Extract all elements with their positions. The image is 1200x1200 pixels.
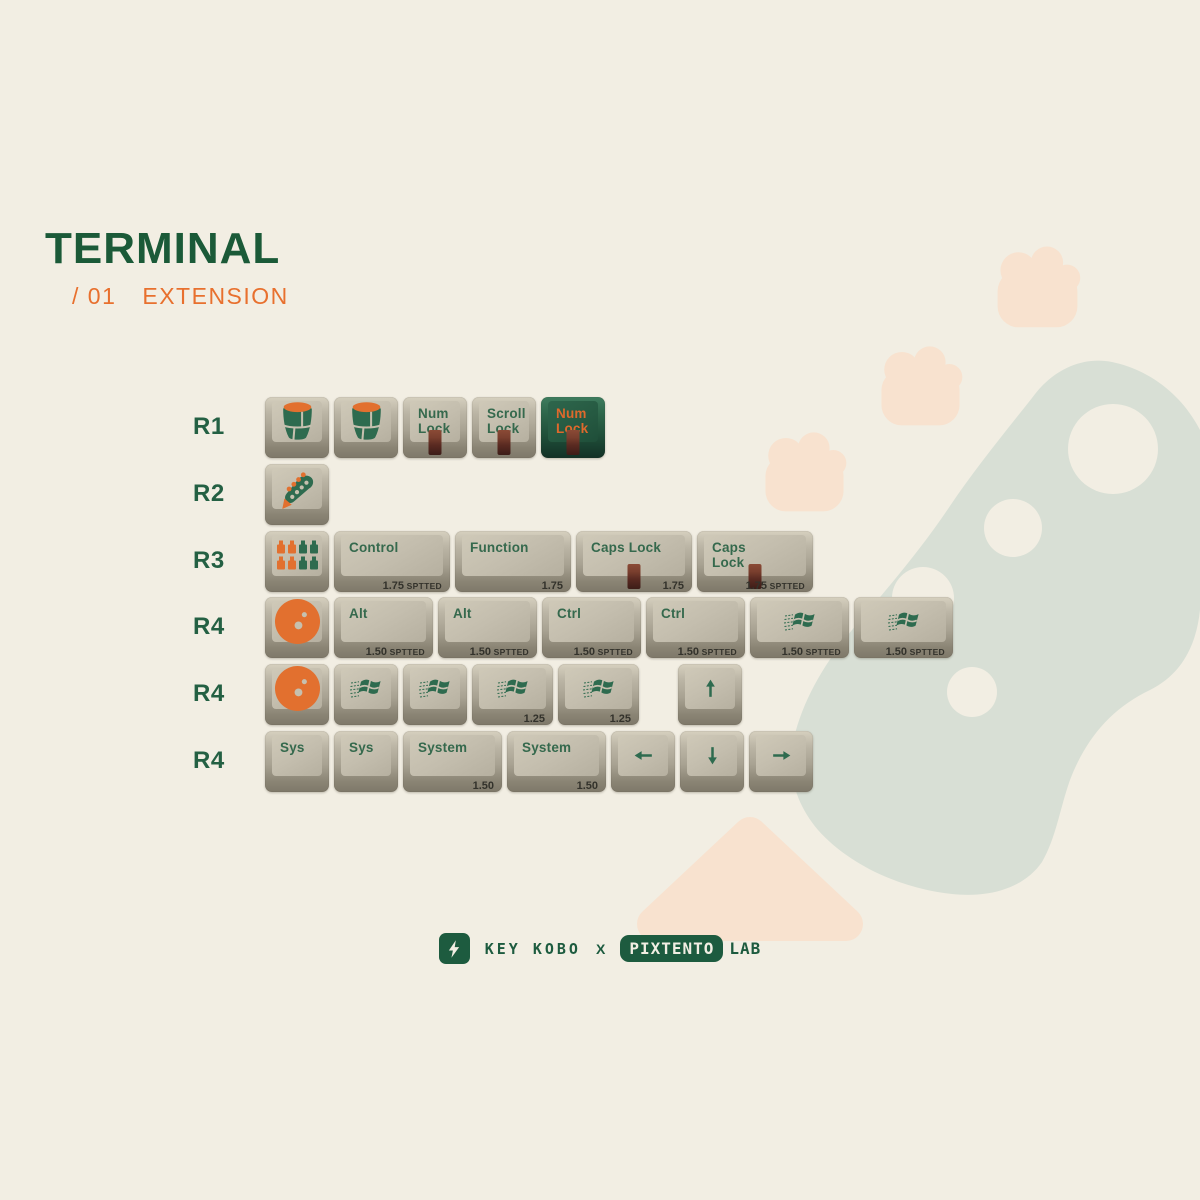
windows-logo-icon bbox=[496, 674, 530, 704]
windows-logo-icon bbox=[582, 674, 616, 704]
guitar-headstock-icon bbox=[276, 468, 318, 510]
keycap-top: Ctrl bbox=[653, 601, 738, 642]
brand-footer: KEY KOBO X PIXTENTO LAB bbox=[0, 933, 1200, 964]
bowling-ball-icon bbox=[274, 665, 321, 712]
keycap-size-label: 1.25 bbox=[524, 713, 545, 725]
keycap-ctrl: Ctrl1.50 SPTTED bbox=[646, 597, 745, 658]
keycap-legend: Alt bbox=[453, 606, 472, 621]
keycap-drum bbox=[334, 397, 398, 458]
keycap-size-label: 1.50 SPTTED bbox=[782, 646, 841, 658]
arrow-up-icon bbox=[698, 676, 723, 701]
keycap-legend: Control bbox=[349, 540, 398, 555]
keycap-top bbox=[618, 735, 668, 776]
keycap-size-label: 1.75 SPTTED bbox=[746, 580, 805, 592]
keycap-alt: Alt1.50 SPTTED bbox=[334, 597, 433, 658]
keycap-top: System bbox=[514, 735, 599, 776]
keycap-function: Function1.75 bbox=[455, 531, 571, 592]
keycap-bowling-ball bbox=[265, 597, 329, 658]
row-label: R4 bbox=[193, 613, 225, 641]
keycap-top bbox=[756, 735, 806, 776]
keycap-rows: R1NumLockScrollLockNumLockR2R3Control1.7… bbox=[0, 0, 1200, 1200]
keycap-top bbox=[410, 668, 460, 709]
keycap-arrow-right bbox=[749, 731, 813, 792]
keycap-legend: Function bbox=[470, 540, 529, 555]
poster-canvas: TERMINAL / 01 EXTENSION R1NumLockScrollL… bbox=[0, 0, 1200, 1200]
row-label: R4 bbox=[193, 680, 225, 708]
brand-key-kobo: KEY KOBO bbox=[485, 940, 581, 958]
keycap-system: System1.50 bbox=[507, 731, 606, 792]
keycap-alt: Alt1.50 SPTTED bbox=[438, 597, 537, 658]
keycap-top bbox=[272, 601, 322, 642]
keycap-top bbox=[479, 668, 546, 709]
keycap-top: Sys bbox=[341, 735, 391, 776]
keycap-top bbox=[341, 668, 391, 709]
keycap-arrow-up bbox=[678, 664, 742, 725]
led-window bbox=[498, 430, 511, 455]
bowling-ball-icon bbox=[274, 598, 321, 645]
keycap-top bbox=[272, 468, 322, 509]
mixer-faders-icon bbox=[275, 540, 319, 571]
keycap-mixer-faders bbox=[265, 531, 329, 592]
keycap-size-label: 1.50 SPTTED bbox=[886, 646, 945, 658]
keycap-size-label: 1.50 SPTTED bbox=[366, 646, 425, 658]
keycap-windows-logo: 1.25 bbox=[472, 664, 553, 725]
keycap-size-label: 1.50 bbox=[473, 780, 494, 792]
windows-logo-icon bbox=[783, 607, 817, 637]
keycap-size-label: 1.75 SPTTED bbox=[383, 580, 442, 592]
arrow-down-icon bbox=[700, 743, 725, 768]
keycap-bowling-ball bbox=[265, 664, 329, 725]
keycap-guitar-headstock bbox=[265, 464, 329, 525]
keycap-top bbox=[685, 668, 735, 709]
keycap-caps-lock: CapsLock1.75 SPTTED bbox=[697, 531, 813, 592]
keycap-windows-logo: 1.50 SPTTED bbox=[750, 597, 849, 658]
keycap-sys: Sys bbox=[334, 731, 398, 792]
row-label: R4 bbox=[193, 747, 225, 775]
row-label: R3 bbox=[193, 547, 225, 575]
keycap-arrow-down bbox=[680, 731, 744, 792]
keycap-windows-logo bbox=[334, 664, 398, 725]
keycap-top: System bbox=[410, 735, 495, 776]
keycap-system: System1.50 bbox=[403, 731, 502, 792]
keycap-num-lock: NumLock bbox=[541, 397, 605, 458]
lightning-bolt-icon bbox=[443, 938, 465, 960]
led-window bbox=[567, 430, 580, 455]
keycap-top: Control bbox=[341, 535, 443, 576]
arrow-right-icon bbox=[769, 743, 794, 768]
keycap-legend: Caps Lock bbox=[591, 540, 661, 555]
keycap-caps-lock: Caps Lock1.75 bbox=[576, 531, 692, 592]
keycap-legend: Sys bbox=[349, 740, 374, 755]
windows-logo-icon bbox=[418, 674, 452, 704]
keycap-top bbox=[861, 601, 946, 642]
keycap-top bbox=[272, 535, 322, 576]
windows-logo-icon bbox=[349, 674, 383, 704]
keycap-top: Alt bbox=[341, 601, 426, 642]
keycap-top bbox=[687, 735, 737, 776]
keycap-top bbox=[272, 668, 322, 709]
keycap-top: Sys bbox=[272, 735, 322, 776]
keycap-size-label: 1.50 SPTTED bbox=[470, 646, 529, 658]
windows-logo-icon bbox=[887, 607, 921, 637]
drum-icon bbox=[279, 399, 316, 444]
brand-lab: LAB bbox=[729, 939, 761, 958]
keycap-size-label: 1.75 bbox=[663, 580, 684, 592]
keycap-top: Alt bbox=[445, 601, 530, 642]
keycap-windows-logo: 1.50 SPTTED bbox=[854, 597, 953, 658]
led-window bbox=[429, 430, 442, 455]
brand-pixtento: PIXTENTO bbox=[620, 935, 723, 962]
keycap-legend: CapsLock bbox=[712, 540, 746, 570]
row-label: R2 bbox=[193, 480, 225, 508]
collab-x: X bbox=[596, 941, 605, 957]
keycap-top bbox=[565, 668, 632, 709]
keycap-legend: Alt bbox=[349, 606, 368, 621]
keycap-size-label: 1.50 bbox=[577, 780, 598, 792]
keycap-size-label: 1.75 bbox=[542, 580, 563, 592]
keycap-size-label: 1.25 bbox=[610, 713, 631, 725]
led-window bbox=[628, 564, 641, 589]
keycap-top bbox=[341, 401, 391, 442]
keycap-ctrl: Ctrl1.50 SPTTED bbox=[542, 597, 641, 658]
keycap-drum bbox=[265, 397, 329, 458]
arrow-left-icon bbox=[631, 743, 656, 768]
keycap-arrow-left bbox=[611, 731, 675, 792]
keycap-control: Control1.75 SPTTED bbox=[334, 531, 450, 592]
keycap-top bbox=[757, 601, 842, 642]
keycap-legend: Ctrl bbox=[557, 606, 581, 621]
keycap-scroll-lock: ScrollLock bbox=[472, 397, 536, 458]
keycap-num-lock: NumLock bbox=[403, 397, 467, 458]
keycap-top: Ctrl bbox=[549, 601, 634, 642]
keycap-top bbox=[272, 401, 322, 442]
keycap-legend: Ctrl bbox=[661, 606, 685, 621]
row-label: R1 bbox=[193, 413, 225, 441]
keycap-size-label: 1.50 SPTTED bbox=[678, 646, 737, 658]
keycap-legend: Sys bbox=[280, 740, 305, 755]
drum-icon bbox=[348, 399, 385, 444]
keycap-size-label: 1.50 SPTTED bbox=[574, 646, 633, 658]
key-kobo-logo bbox=[439, 933, 470, 964]
keycap-windows-logo: 1.25 bbox=[558, 664, 639, 725]
keycap-legend: System bbox=[522, 740, 571, 755]
keycap-windows-logo bbox=[403, 664, 467, 725]
keycap-top: Function bbox=[462, 535, 564, 576]
keycap-legend: System bbox=[418, 740, 467, 755]
keycap-sys: Sys bbox=[265, 731, 329, 792]
